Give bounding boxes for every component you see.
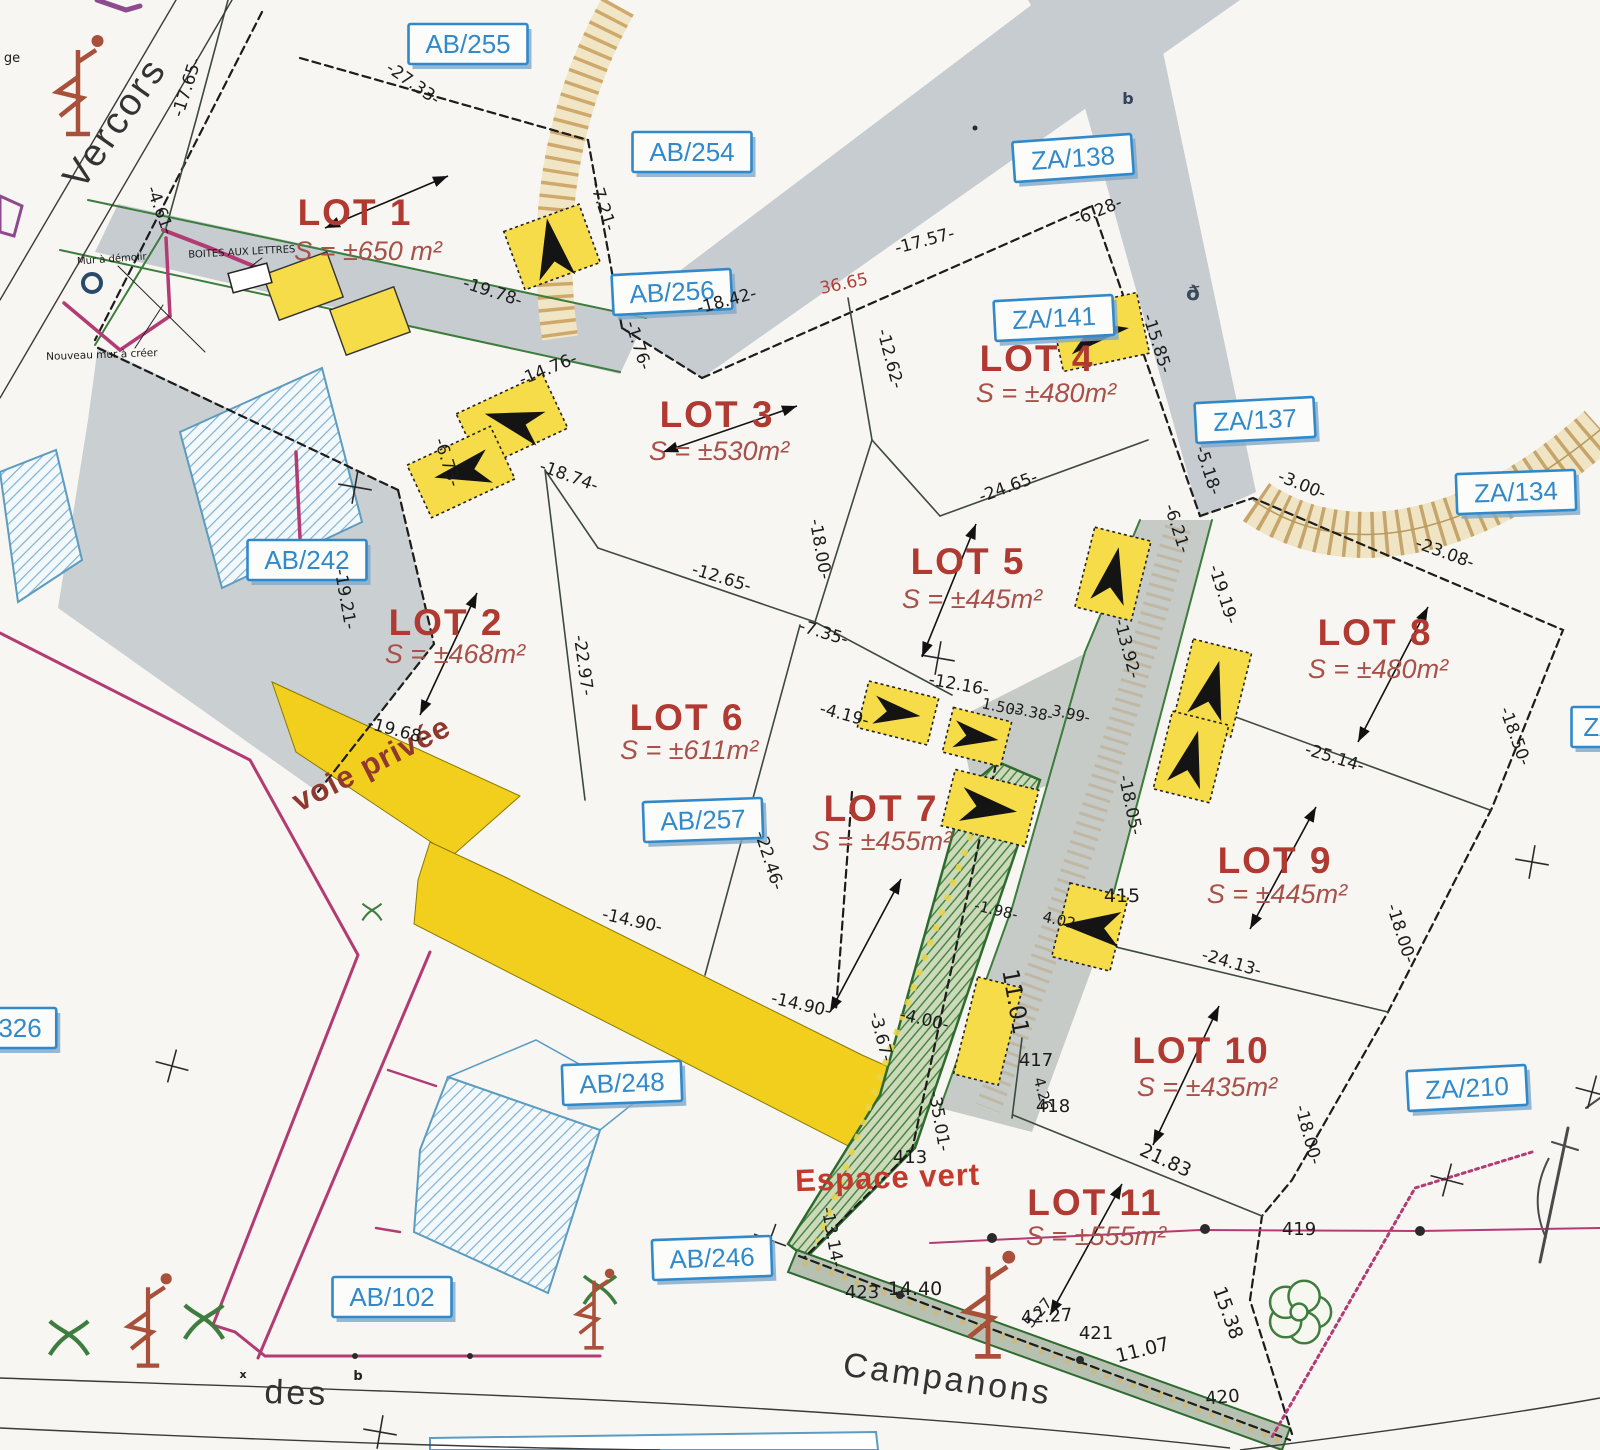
measurement-label: 14.40 — [888, 1278, 942, 1300]
boundary-dot — [352, 1353, 358, 1359]
lot-name: LOT 2 — [389, 602, 504, 643]
parcel-label-text: ZA/138 — [1030, 140, 1116, 176]
parcel-label-text: AB/246 — [669, 1242, 755, 1275]
boundary-dot — [1200, 1224, 1210, 1234]
measurement-label: 423 — [845, 1282, 879, 1303]
lot-area: S = ±468m² — [385, 639, 526, 669]
lot-area: S = ±480m² — [1308, 654, 1449, 684]
parcel-label-text: AB/254 — [649, 137, 734, 167]
parcel-label-text: AB/248 — [579, 1067, 665, 1100]
tree-center — [1291, 1304, 1308, 1321]
lot-name: LOT 3 — [660, 394, 775, 435]
tiny-glyph: x — [239, 1368, 246, 1381]
measurement-label: 418 — [1036, 1096, 1070, 1117]
parcel-label: ZA/137 — [1195, 397, 1320, 448]
tiny-glyph: b — [1122, 89, 1133, 108]
lot-label-group: LOT 6S = ±611m² — [620, 697, 759, 765]
parcel-label-text: ZA/141 — [1011, 301, 1096, 335]
lot-area: S = ±445m² — [902, 584, 1043, 614]
lot-name: LOT 8 — [1318, 612, 1433, 653]
lot-area: S = ±555m² — [1026, 1221, 1167, 1251]
lot-area: S = ±611m² — [620, 735, 759, 765]
parcel-label: 326 — [0, 1008, 60, 1053]
parcel-label: AB/254 — [633, 132, 756, 177]
measurement-label: 415 — [1104, 885, 1140, 907]
zone-label: Espace vert — [795, 1157, 981, 1198]
lot-area: S = ±455m² — [812, 826, 953, 856]
street-name: des — [264, 1373, 329, 1413]
lot-area: S = ±650 m² — [294, 236, 443, 266]
lot-name: LOT 7 — [824, 788, 939, 829]
parcel-label-text: AB/257 — [660, 804, 746, 837]
measurement-label: 419 — [1282, 1219, 1316, 1240]
lot-name: LOT 1 — [298, 192, 413, 233]
parcel-label-text: ZA — [1583, 712, 1600, 742]
boundary-dot — [1076, 1356, 1084, 1364]
lot-area: S = ±435m² — [1137, 1072, 1278, 1102]
streetlight-head — [605, 1269, 615, 1279]
measurement-label: 421 — [1079, 1323, 1113, 1344]
parcel-label-text: ZA/137 — [1212, 403, 1297, 437]
measurement-label: 417 — [1019, 1050, 1053, 1071]
parcel-label-text: ZA/210 — [1424, 1071, 1509, 1105]
lot-name: LOT 10 — [1132, 1030, 1269, 1071]
lot-name: LOT 4 — [980, 338, 1095, 379]
parcel-label: AB/255 — [409, 24, 532, 69]
measurement-label: 413 — [893, 1147, 927, 1168]
parcel-label-text: AB/255 — [425, 29, 510, 59]
measurement-label: 42.27 — [1020, 1305, 1073, 1329]
tiny-glyph: b — [353, 1369, 362, 1384]
parcel-label: AB/248 — [562, 1061, 686, 1110]
lot-name: LOT 11 — [1027, 1182, 1162, 1223]
lot-area: S = ±445m² — [1207, 879, 1348, 909]
annotation-note: ge — [4, 51, 20, 66]
parcel-label: AB/246 — [652, 1236, 776, 1285]
parcel-label: ZA/134 — [1456, 470, 1580, 519]
lot-name: LOT 6 — [630, 697, 745, 738]
lot-area: S = ±480m² — [976, 378, 1117, 408]
parcel-label: AB/102 — [333, 1277, 456, 1322]
streetlight-head — [1002, 1251, 1015, 1264]
parcel-label-text: AB/102 — [349, 1282, 434, 1312]
lot-area: S = ±530m² — [649, 436, 790, 466]
parcel-label: ZA/210 — [1407, 1065, 1532, 1116]
lot-name: LOT 5 — [911, 541, 1026, 582]
parcel-label: AB/257 — [643, 798, 767, 847]
lot-name: LOT 9 — [1218, 840, 1333, 881]
parcel-label-text: ZA/134 — [1474, 476, 1559, 509]
boundary-dot — [1415, 1226, 1425, 1236]
boundary-dot — [467, 1353, 473, 1359]
boundary-dot — [973, 126, 978, 131]
plan-svg: ðbbx VercorsdesCampanonsAB/255AB/254ZA/1… — [0, 0, 1600, 1450]
streetlight-head — [161, 1273, 172, 1284]
parcel-label-text: 326 — [0, 1013, 42, 1043]
parcel-label: ZA/138 — [1012, 134, 1138, 187]
streetlight-head — [92, 35, 104, 47]
boundary-dot — [987, 1233, 997, 1243]
parcel-label: ZA — [1572, 707, 1600, 752]
measurement-label: 420 — [1204, 1386, 1240, 1410]
cadastral-plan: ðbbx VercorsdesCampanonsAB/255AB/254ZA/1… — [0, 0, 1600, 1450]
